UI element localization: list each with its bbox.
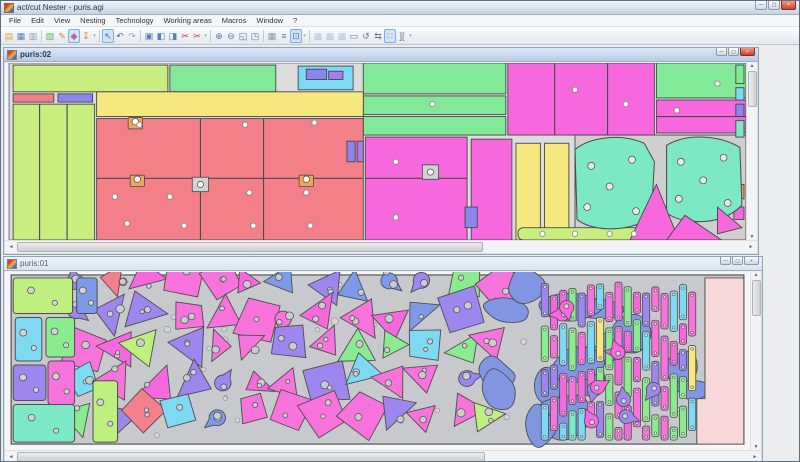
strip-part xyxy=(541,326,548,361)
sheet-outline-icon[interactable]: ▭ xyxy=(348,29,360,43)
nested-part xyxy=(170,65,276,92)
nested-part xyxy=(13,94,54,102)
doc2-maximize-button[interactable]: ▢ xyxy=(732,257,743,265)
part-hole xyxy=(682,315,685,318)
doc2-nesting-canvas[interactable] xyxy=(5,272,750,450)
part-hole xyxy=(672,360,675,363)
part-hole xyxy=(608,330,611,333)
part-hole xyxy=(672,376,675,379)
part-hole xyxy=(599,370,602,373)
part-hole xyxy=(675,195,682,202)
part-hole xyxy=(691,294,694,297)
doc1-title: puris:02 xyxy=(20,49,713,61)
scroll-up-icon[interactable]: ▲ xyxy=(748,63,756,69)
part-hole xyxy=(553,384,556,387)
part-hole xyxy=(88,300,93,305)
app-caption-buttons: — ▢ × xyxy=(755,1,796,10)
part-hole xyxy=(144,382,149,387)
part-hole xyxy=(720,154,727,161)
part-hole xyxy=(682,408,685,411)
close-button[interactable]: × xyxy=(781,1,796,10)
part-hole xyxy=(608,365,611,368)
part-hole xyxy=(617,435,620,438)
part-hole xyxy=(430,101,435,106)
part-hole xyxy=(636,294,639,297)
part-hole xyxy=(540,231,545,236)
part-hole xyxy=(654,289,657,292)
part-hole xyxy=(682,352,685,355)
scroll-right-icon[interactable]: ► xyxy=(751,454,759,460)
part-hole xyxy=(631,231,636,236)
select-pointer-icon[interactable]: ↖ xyxy=(102,29,114,43)
nested-part xyxy=(736,65,744,84)
menu-item-file[interactable]: File xyxy=(4,15,26,26)
part-hole xyxy=(108,421,113,426)
menu-item-technology[interactable]: Technology xyxy=(111,15,159,26)
doc2-hscroll-thumb[interactable] xyxy=(17,452,485,462)
erase-tool-icon[interactable]: ◆ xyxy=(68,29,80,43)
part-hole xyxy=(608,317,611,320)
strip-part xyxy=(596,318,603,362)
part-hole xyxy=(571,330,574,333)
doc2-title: puris:01 xyxy=(20,258,717,270)
gauge-icon[interactable]: ][ xyxy=(396,29,408,43)
part-hole xyxy=(599,305,602,308)
edit-sheet-icon[interactable]: ✎ xyxy=(56,29,68,43)
part-hole xyxy=(682,326,685,329)
menu-item-edit[interactable]: Edit xyxy=(26,15,49,26)
paste-special-icon[interactable]: ◨ xyxy=(167,29,179,43)
part-hole xyxy=(562,361,565,364)
nest-block-icon: ▩ xyxy=(324,29,336,43)
part-hole xyxy=(654,432,657,435)
doc1-hscroll-thumb[interactable] xyxy=(17,242,483,252)
part-hole xyxy=(691,386,694,389)
skeleton-dot xyxy=(154,433,159,438)
part-hole xyxy=(608,401,611,404)
nested-part xyxy=(13,65,168,92)
part-hole xyxy=(286,379,291,383)
pair-parts-icon[interactable]: ∷ xyxy=(384,29,396,43)
part-hole xyxy=(571,316,574,319)
nested-part xyxy=(516,143,540,240)
part-hole xyxy=(645,321,648,324)
part-hole xyxy=(167,194,172,199)
part-hole xyxy=(599,433,602,436)
part-hole xyxy=(590,358,593,361)
part-hole xyxy=(682,432,685,435)
part-hole xyxy=(691,348,694,351)
toolbar-separator xyxy=(210,30,211,42)
part-hole xyxy=(28,287,35,294)
part-hole xyxy=(571,435,574,438)
cut-multi-icon[interactable]: ✂ xyxy=(191,29,203,43)
part-hole xyxy=(562,292,565,295)
part-hole xyxy=(636,377,639,380)
strip-part xyxy=(560,324,567,366)
nested-part xyxy=(736,88,744,100)
toolbar-separator xyxy=(309,30,310,42)
app-title: act/cut Nester - puris.agi xyxy=(17,2,752,14)
app-titlebar: act/cut Nester - puris.agi — ▢ × xyxy=(1,1,799,15)
part-hole xyxy=(682,340,685,343)
rotate-part-icon[interactable]: ↺ xyxy=(360,29,372,43)
cut-icon[interactable]: ✂ xyxy=(179,29,191,43)
part-hole xyxy=(654,363,657,366)
part-hole xyxy=(672,343,675,346)
part-hole xyxy=(654,401,657,404)
part-hole xyxy=(663,296,666,299)
part-hole xyxy=(654,352,657,355)
nested-part xyxy=(736,121,744,137)
part-hole xyxy=(663,406,666,409)
part-hole xyxy=(617,284,620,287)
part-hole xyxy=(63,343,68,348)
toolbar-overflow-icon[interactable]: ▾ xyxy=(203,33,208,39)
part-hole xyxy=(636,360,639,363)
grid-icon[interactable]: ▦ xyxy=(266,29,278,43)
doc1-nesting-canvas[interactable] xyxy=(5,63,746,240)
strip-part xyxy=(670,374,677,418)
part-hole xyxy=(606,183,613,190)
part-hole xyxy=(553,338,556,341)
part-hole xyxy=(580,435,583,438)
part-hole xyxy=(590,324,593,327)
part-hole xyxy=(654,307,657,310)
part-hole xyxy=(571,413,574,416)
open-icon[interactable]: ▤ xyxy=(3,29,15,43)
part-hole xyxy=(663,435,666,438)
part-hole xyxy=(645,295,648,298)
part-hole xyxy=(645,380,648,383)
clamp-symbol xyxy=(303,176,310,183)
part-hole xyxy=(672,429,675,432)
part-hole xyxy=(636,322,639,325)
redo-icon[interactable]: ↷ xyxy=(126,29,138,43)
part-hole xyxy=(636,347,639,350)
toolbar-overflow-icon[interactable]: ▾ xyxy=(302,33,307,39)
scroll-up-icon[interactable]: ▲ xyxy=(752,272,760,278)
nest-fill-icon: ▩ xyxy=(336,29,348,43)
part-hole xyxy=(590,287,593,290)
part-hole xyxy=(393,215,398,220)
nested-part xyxy=(15,317,42,361)
save-icon[interactable]: ▦ xyxy=(15,29,27,43)
part-hole xyxy=(626,321,629,324)
part-hole xyxy=(672,413,675,416)
part-hole xyxy=(543,312,546,315)
scroll-left-icon[interactable]: ◄ xyxy=(7,454,15,460)
part-hole xyxy=(458,275,464,280)
nested-part xyxy=(365,137,467,240)
part-hole xyxy=(621,398,626,403)
part-hole xyxy=(608,294,611,297)
part-hole xyxy=(626,333,629,336)
part-hole xyxy=(197,181,203,187)
nested-part xyxy=(465,207,477,228)
part-hole xyxy=(33,387,38,392)
part-hole xyxy=(629,156,636,163)
nested-part xyxy=(97,92,364,117)
toolbar-overflow-icon[interactable]: ▾ xyxy=(408,33,413,39)
skeleton-dot xyxy=(207,346,212,351)
part-hole xyxy=(20,374,27,381)
doc1-close-button[interactable]: × xyxy=(740,48,755,56)
part-hole xyxy=(424,347,428,351)
minimize-button[interactable]: — xyxy=(755,1,767,10)
part-hole xyxy=(553,297,556,300)
part-hole xyxy=(588,162,595,169)
maximize-button[interactable]: ▢ xyxy=(768,1,780,10)
strip-part xyxy=(679,285,686,320)
part-hole xyxy=(654,417,657,420)
origin-toggle-icon[interactable]: ⊡ xyxy=(290,29,302,43)
part-hole xyxy=(488,418,493,423)
part-hole xyxy=(572,231,577,236)
part-hole xyxy=(580,322,583,325)
part-hole xyxy=(691,400,694,403)
part-hole xyxy=(599,357,602,360)
strip-part xyxy=(615,282,622,321)
part-hole xyxy=(599,404,602,407)
doc2-vertical-scrollbar[interactable]: ▲ ▼ xyxy=(750,272,761,450)
part-hole xyxy=(580,360,583,363)
copy-icon[interactable]: ▣ xyxy=(143,29,155,43)
nested-part xyxy=(409,330,441,361)
part-hole xyxy=(278,335,284,341)
part-hole xyxy=(52,373,59,380)
nested-part xyxy=(306,69,326,79)
nested-part xyxy=(13,104,94,240)
menu-item-nesting[interactable]: Nesting xyxy=(75,15,110,26)
skeleton-dot xyxy=(331,318,338,325)
document-icon xyxy=(7,50,17,60)
skeleton-dot xyxy=(521,339,527,345)
nested-part xyxy=(363,117,506,136)
sort-parts-icon[interactable]: ≡ xyxy=(278,29,290,43)
doc1-vertical-scrollbar[interactable]: ▲ ▼ xyxy=(746,63,757,240)
nested-part xyxy=(58,94,93,102)
doc2-body: ▲ ▼ ◄ ► xyxy=(5,272,761,462)
document-icon xyxy=(7,259,17,269)
part-hole xyxy=(571,366,574,369)
part-hole xyxy=(553,426,556,429)
menu-item-working-areas[interactable]: Working areas xyxy=(159,15,217,26)
part-hole xyxy=(251,223,256,228)
part-hole xyxy=(691,331,694,334)
doc1-horizontal-scrollbar[interactable]: ◄ ► xyxy=(5,240,757,253)
part-hole xyxy=(181,223,186,228)
part-hole xyxy=(562,326,565,329)
part-hole xyxy=(682,379,685,382)
flip-part-icon[interactable]: ⇆ xyxy=(372,29,384,43)
part-hole xyxy=(562,411,565,414)
part-hole xyxy=(124,221,129,226)
menu-item-macros[interactable]: Macros xyxy=(217,15,252,26)
part-hole xyxy=(304,190,309,195)
strip-part xyxy=(652,320,659,356)
part-hole xyxy=(654,322,657,325)
part-hole xyxy=(626,289,629,292)
part-hole xyxy=(599,320,602,323)
doc1-minimize-button[interactable]: — xyxy=(716,48,727,56)
zoom-window-icon[interactable]: ◱ xyxy=(237,29,249,43)
nested-part xyxy=(363,63,506,94)
strip-part xyxy=(569,328,576,370)
strip-part xyxy=(550,397,557,431)
doc1-titlebar[interactable]: puris:02 — ▢ × xyxy=(4,48,758,62)
zoom-in-icon[interactable]: ⊕ xyxy=(213,29,225,43)
toolbar: ▤▦▥▧✎◆↧▾↖↶↷▣◧◨✂✂▾⊕⊖◱◳▦≡⊡▾▩▩▩▭↺⇆∷][▾ xyxy=(1,27,799,45)
doc1-vscroll-thumb[interactable] xyxy=(748,71,757,107)
paste-icon[interactable]: ◧ xyxy=(155,29,167,43)
part-hole xyxy=(571,379,574,382)
nested-part xyxy=(508,63,655,135)
doc2-titlebar[interactable]: puris:01 — ▢ × xyxy=(4,257,762,271)
part-hole xyxy=(626,347,629,350)
skeleton-dot xyxy=(435,408,440,413)
nested-part xyxy=(736,104,744,116)
doc1-maximize-button[interactable]: ▢ xyxy=(728,48,739,56)
strip-part xyxy=(661,294,668,329)
part-hole xyxy=(599,286,602,289)
nested-part xyxy=(13,365,46,401)
zoom-all-icon[interactable]: ◳ xyxy=(249,29,261,43)
part-hole xyxy=(674,108,679,113)
toolbar-separator xyxy=(140,30,141,42)
skeleton-dot xyxy=(223,397,227,401)
nested-part xyxy=(13,278,72,314)
app-window: act/cut Nester - puris.agi — ▢ × FileEdi… xyxy=(0,0,800,462)
menu-bar: FileEditViewNestingTechnologyWorking are… xyxy=(1,15,799,27)
app-icon xyxy=(4,3,14,13)
menu-item-window[interactable]: Window xyxy=(251,15,288,26)
nesting-layout-1 xyxy=(5,63,746,240)
strip-part xyxy=(670,291,677,331)
nested-part xyxy=(329,71,343,79)
nested-part xyxy=(48,361,75,405)
part-hole xyxy=(617,380,620,383)
part-hole xyxy=(543,372,546,375)
part-hole xyxy=(724,199,731,206)
part-hole xyxy=(636,309,639,312)
scroll-right-icon[interactable]: ► xyxy=(747,244,755,250)
skeleton-dot xyxy=(504,415,509,420)
nested-part xyxy=(13,405,74,443)
strip-part xyxy=(587,322,594,364)
part-hole xyxy=(682,287,685,290)
punch-tool-icon[interactable]: ↧ xyxy=(80,29,92,43)
strip-part xyxy=(615,427,622,440)
part-hole xyxy=(645,365,648,368)
part-hole xyxy=(543,357,546,360)
strip-part xyxy=(689,292,696,336)
part-hole xyxy=(580,295,583,298)
part-hole xyxy=(608,435,611,438)
part-hole xyxy=(247,190,252,195)
part-hole xyxy=(553,353,556,356)
doc2-minimize-button[interactable]: — xyxy=(720,257,731,265)
nested-part xyxy=(347,141,355,162)
document-window-2[interactable]: puris:01 — ▢ × ▲ ▼ xyxy=(3,256,763,462)
doc1-body: ▲ ▼ ◄ ► xyxy=(5,63,757,253)
document-window-1[interactable]: puris:02 — ▢ × ▲ ▼ xyxy=(3,47,759,255)
part-hole xyxy=(580,398,583,401)
part-hole xyxy=(251,346,260,354)
part-hole xyxy=(543,435,546,438)
part-hole xyxy=(617,316,620,319)
zoom-out-icon[interactable]: ⊖ xyxy=(225,29,237,43)
undo-icon[interactable]: ↶ xyxy=(114,29,126,43)
part-hole xyxy=(590,404,593,407)
part-hole xyxy=(572,87,577,92)
doc2-close-button[interactable]: × xyxy=(744,257,759,265)
toolbar-separator xyxy=(41,30,42,42)
part-hole xyxy=(633,208,640,215)
part-hole xyxy=(590,311,593,314)
part-hole xyxy=(663,338,666,341)
part-hole xyxy=(663,324,666,327)
part-hole xyxy=(580,411,583,414)
part-hole xyxy=(243,122,248,127)
part-hole xyxy=(137,122,142,127)
scroll-left-icon[interactable]: ◄ xyxy=(7,244,15,250)
part-hole xyxy=(289,342,298,350)
new-sheet-icon[interactable]: ▧ xyxy=(44,29,56,43)
toolbar-overflow-icon[interactable]: ▾ xyxy=(92,33,97,39)
part-hole xyxy=(608,377,611,380)
strip-part xyxy=(624,287,631,326)
part-hole xyxy=(626,359,629,362)
toolbar-separator xyxy=(263,30,264,42)
part-hole xyxy=(617,430,620,433)
nested-part xyxy=(544,143,568,240)
part-hole xyxy=(553,367,556,370)
part-hole xyxy=(64,389,69,394)
part-hole xyxy=(626,435,629,438)
doc2-vscroll-thumb[interactable] xyxy=(752,280,761,316)
part-hole xyxy=(590,371,593,374)
part-hole xyxy=(672,435,675,438)
part-hole xyxy=(645,334,648,337)
part-hole xyxy=(543,406,546,409)
part-hole xyxy=(28,414,35,421)
part-hole xyxy=(663,376,666,379)
part-hole xyxy=(312,120,317,125)
part-hole xyxy=(543,392,546,395)
part-hole xyxy=(580,334,583,337)
part-hole xyxy=(645,417,648,420)
nested-part xyxy=(409,330,441,361)
part-hole xyxy=(308,223,313,228)
print-icon[interactable]: ▥ xyxy=(27,29,39,43)
part-hole xyxy=(562,375,565,378)
menu-item-[interactable]: ? xyxy=(288,15,302,26)
part-hole xyxy=(427,339,433,344)
part-hole xyxy=(663,418,666,421)
part-hole xyxy=(180,316,188,324)
menu-item-view[interactable]: View xyxy=(49,15,75,26)
part-hole xyxy=(677,158,684,165)
part-hole xyxy=(672,293,675,296)
part-hole xyxy=(715,81,720,86)
part-hole xyxy=(682,366,685,369)
part-hole xyxy=(607,231,612,236)
part-hole xyxy=(691,426,694,429)
doc2-horizontal-scrollbar[interactable]: ◄ ► xyxy=(5,450,761,462)
part-hole xyxy=(682,394,685,397)
nested-part xyxy=(357,141,363,162)
